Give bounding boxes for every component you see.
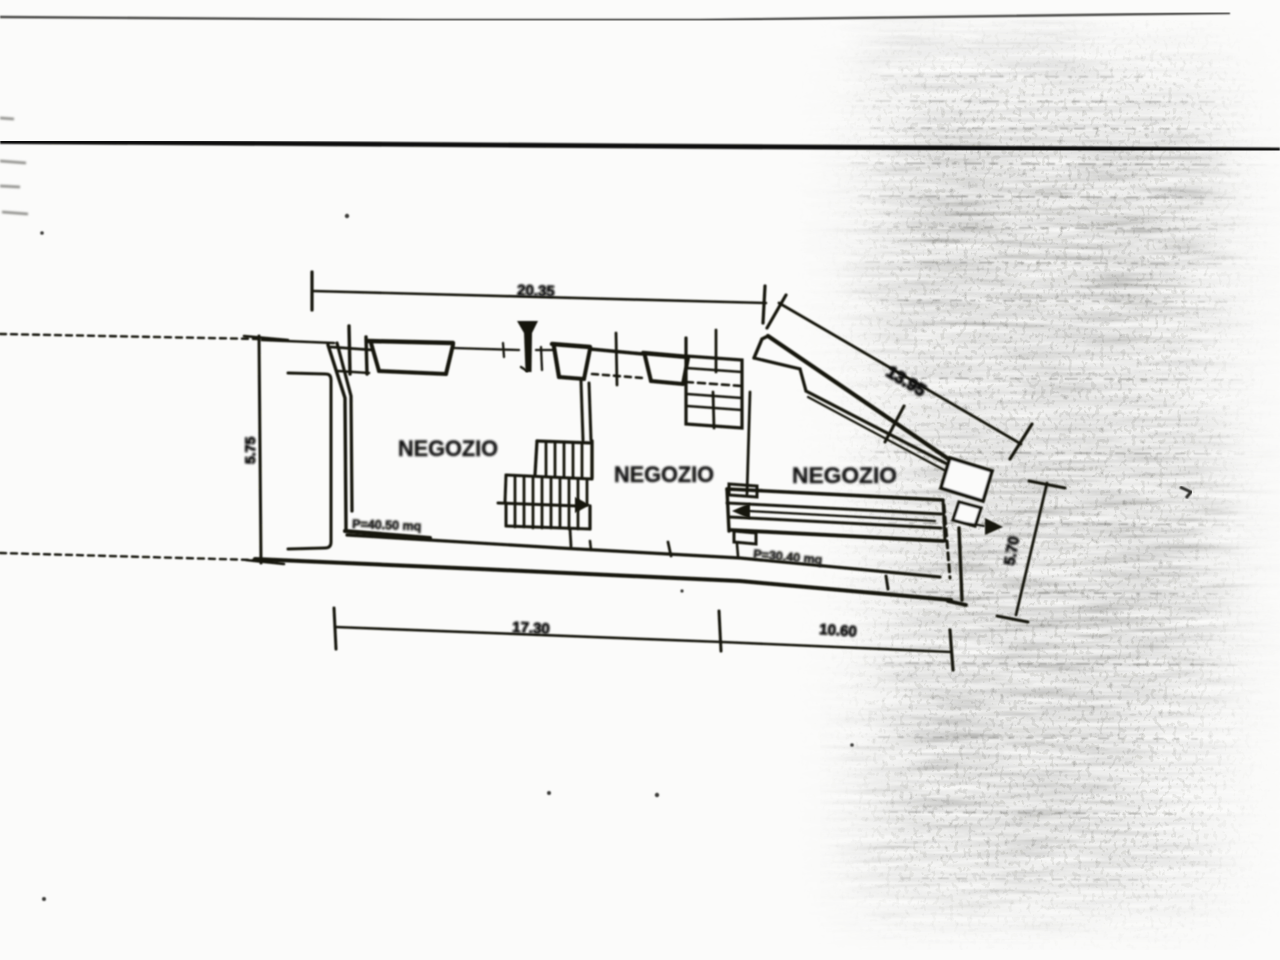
svg-text:5.75: 5.75: [242, 437, 258, 464]
svg-text:17.30: 17.30: [512, 619, 550, 638]
svg-text:NEGOZIO: NEGOZIO: [792, 463, 897, 488]
svg-text:20.35: 20.35: [517, 282, 555, 300]
svg-text:NEGOZIO: NEGOZIO: [398, 436, 498, 461]
svg-text:10.60: 10.60: [819, 621, 858, 641]
svg-text:P=40.50 mq: P=40.50 mq: [352, 517, 422, 533]
svg-text:NEGOZIO: NEGOZIO: [614, 462, 714, 487]
